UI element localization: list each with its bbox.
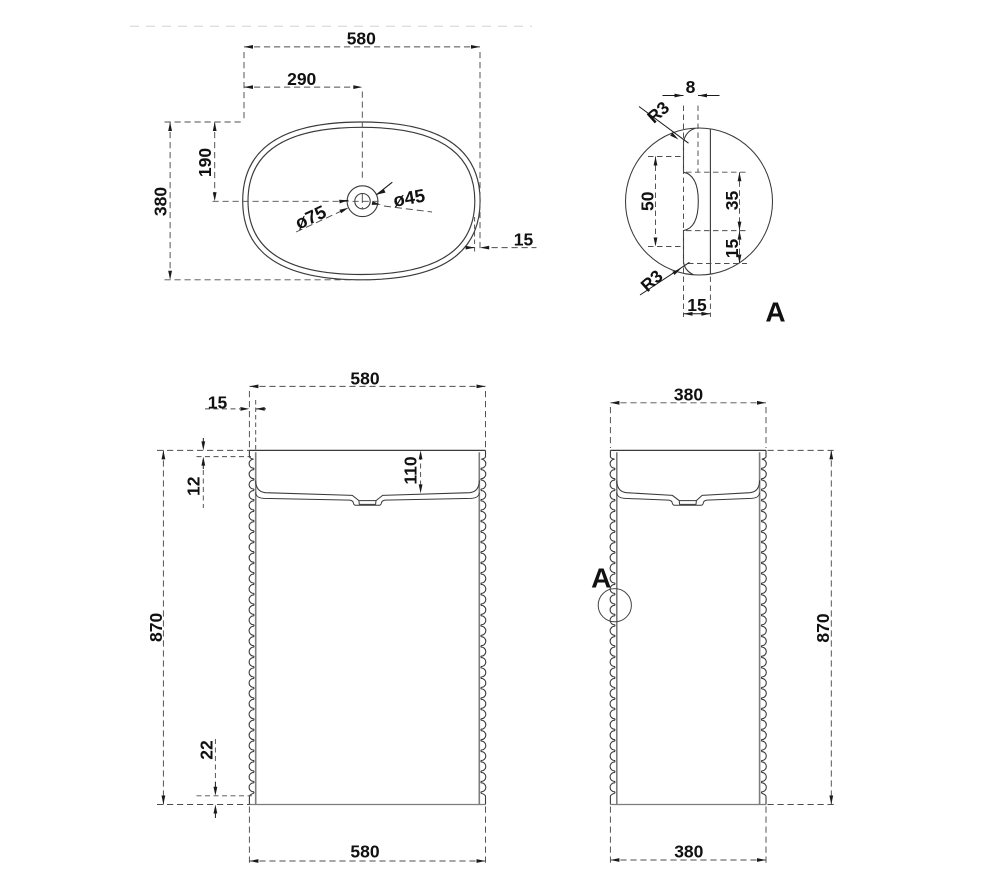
svg-text:580: 580: [347, 28, 376, 48]
svg-text:35: 35: [722, 191, 742, 211]
svg-text:870: 870: [146, 613, 166, 642]
svg-text:15: 15: [208, 392, 228, 412]
svg-text:580: 580: [350, 368, 379, 388]
svg-text:15: 15: [722, 239, 742, 259]
svg-text:15: 15: [687, 295, 707, 315]
svg-text:110: 110: [401, 456, 421, 484]
svg-text:870: 870: [813, 613, 833, 642]
svg-text:190: 190: [195, 148, 215, 177]
svg-text:380: 380: [674, 385, 703, 405]
svg-text:580: 580: [350, 842, 379, 862]
svg-text:15: 15: [514, 230, 534, 250]
svg-text:290: 290: [287, 69, 316, 89]
svg-text:380: 380: [674, 842, 703, 862]
svg-text:A: A: [591, 563, 611, 594]
svg-text:8: 8: [686, 77, 696, 97]
svg-text:12: 12: [184, 476, 204, 496]
svg-text:380: 380: [151, 187, 171, 216]
svg-text:50: 50: [637, 191, 657, 211]
svg-text:A: A: [765, 297, 785, 328]
svg-text:22: 22: [196, 740, 216, 760]
